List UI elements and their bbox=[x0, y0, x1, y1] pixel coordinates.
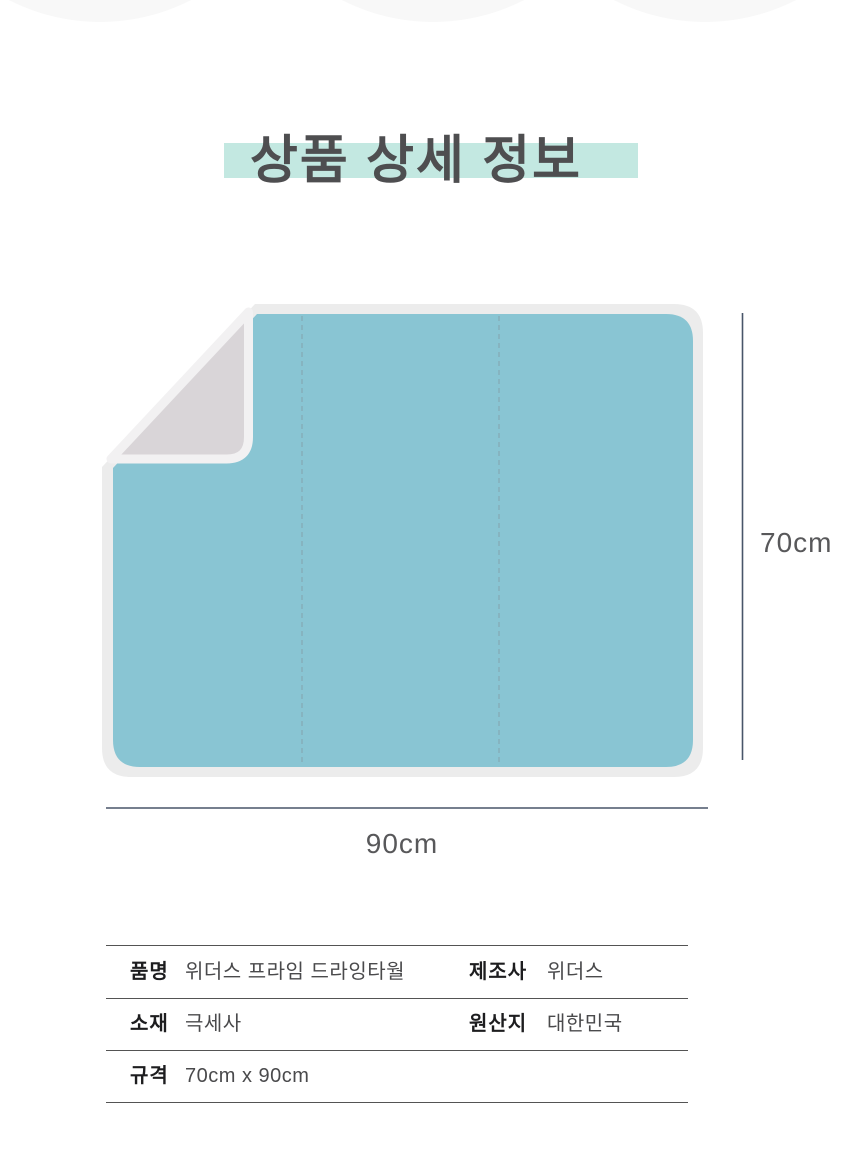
spec-row-name-maker: 품명 위더스 프라임 드라잉타월 제조사 위더스 bbox=[106, 945, 688, 998]
spec-label: 품명 bbox=[130, 946, 169, 998]
towel-fold-corner bbox=[111, 312, 249, 459]
spec-value: 극세사 bbox=[185, 999, 242, 1050]
spec-value: 위더스 bbox=[547, 946, 604, 998]
spec-value: 대한민국 bbox=[547, 999, 623, 1050]
height-dimension-label: 70cm bbox=[760, 527, 832, 559]
spec-row-material-origin: 소재 극세사 원산지 대한민국 bbox=[106, 998, 688, 1050]
width-dimension-label: 90cm bbox=[302, 828, 502, 860]
spec-label: 규격 bbox=[130, 1051, 169, 1102]
spec-label: 제조사 bbox=[469, 946, 527, 998]
spec-value: 위더스 프라임 드라잉타월 bbox=[185, 946, 405, 998]
spec-value: 70cm x 90cm bbox=[185, 1051, 309, 1102]
spec-row-size: 규격 70cm x 90cm bbox=[106, 1050, 688, 1102]
spec-label: 소재 bbox=[130, 999, 169, 1050]
product-detail-page: 상품 상세 정보 70cm 90cm 품명 위더스 프라임 드라잉타월 제조사 … bbox=[0, 0, 860, 1169]
spec-table: 품명 위더스 프라임 드라잉타월 제조사 위더스 소재 극세사 원산지 대한민국… bbox=[106, 945, 688, 1103]
spec-label: 원산지 bbox=[469, 999, 527, 1050]
